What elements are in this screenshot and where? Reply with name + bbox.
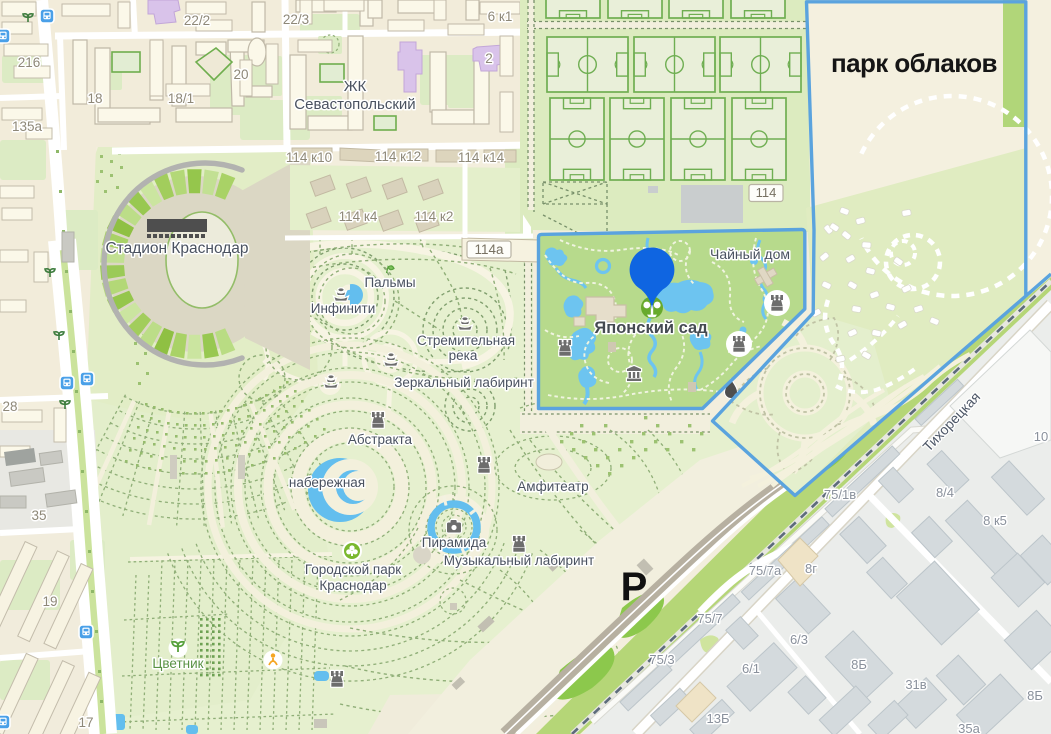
svg-text:6/1: 6/1 <box>742 661 760 676</box>
svg-text:22/3: 22/3 <box>283 12 309 27</box>
svg-text:Чайный дом: Чайный дом <box>710 246 790 262</box>
svg-text:28: 28 <box>2 399 17 414</box>
svg-text:6/3: 6/3 <box>790 632 808 647</box>
svg-text:набережная: набережная <box>289 475 365 490</box>
svg-text:13Б: 13Б <box>707 711 730 726</box>
svg-text:Инфинити: Инфинити <box>311 301 376 316</box>
svg-text:Цветник: Цветник <box>152 656 203 671</box>
svg-text:75/1в: 75/1в <box>824 487 856 502</box>
svg-text:20: 20 <box>233 67 248 82</box>
svg-text:31в: 31в <box>905 677 926 692</box>
svg-text:10: 10 <box>1034 429 1048 444</box>
svg-text:114 к10: 114 к10 <box>286 150 332 165</box>
svg-text:35а: 35а <box>958 721 980 734</box>
svg-text:114 к2: 114 к2 <box>415 209 454 224</box>
svg-text:8/4: 8/4 <box>936 485 954 500</box>
svg-text:114а: 114а <box>474 242 504 257</box>
svg-text:8Б: 8Б <box>1027 688 1043 703</box>
svg-text:114 к12: 114 к12 <box>375 149 421 164</box>
svg-text:8Б: 8Б <box>851 657 867 672</box>
svg-text:Японский сад: Японский сад <box>594 319 708 337</box>
svg-text:114 к4: 114 к4 <box>339 209 378 224</box>
svg-text:22/2: 22/2 <box>184 13 210 28</box>
svg-text:Пирамида: Пирамида <box>422 535 487 550</box>
svg-text:135а: 135а <box>12 119 43 134</box>
svg-text:Городской парк: Городской парк <box>305 562 401 577</box>
svg-text:Краснодар: Краснодар <box>319 578 386 593</box>
svg-text:Севастопольский: Севастопольский <box>294 96 415 113</box>
svg-text:река: река <box>449 348 478 363</box>
svg-text:75/7: 75/7 <box>697 611 722 626</box>
svg-text:114 к14: 114 к14 <box>458 150 505 165</box>
svg-text:75/3: 75/3 <box>649 652 674 667</box>
svg-text:114: 114 <box>756 185 777 200</box>
svg-text:2: 2 <box>485 51 493 66</box>
svg-text:17: 17 <box>78 715 93 730</box>
svg-text:парк облаков: парк облаков <box>831 48 997 78</box>
svg-text:8г: 8г <box>805 561 817 576</box>
svg-text:Музыкальный лабиринт: Музыкальный лабиринт <box>444 553 594 568</box>
svg-text:Амфитеатр: Амфитеатр <box>517 479 588 494</box>
svg-text:18: 18 <box>87 91 102 106</box>
svg-text:35: 35 <box>31 508 46 523</box>
svg-text:Р: Р <box>621 565 648 609</box>
svg-text:Стремительная: Стремительная <box>417 333 515 348</box>
svg-text:ЖК: ЖК <box>344 78 367 95</box>
svg-text:Стадион Краснодар: Стадион Краснодар <box>105 240 248 257</box>
svg-text:75/7а: 75/7а <box>749 563 782 578</box>
svg-text:216: 216 <box>18 55 41 70</box>
svg-text:19: 19 <box>42 594 57 609</box>
svg-text:18/1: 18/1 <box>168 91 194 106</box>
svg-text:Зеркальный лабиринт: Зеркальный лабиринт <box>394 375 534 390</box>
svg-text:Абстракта: Абстракта <box>348 432 413 447</box>
svg-text:8 к5: 8 к5 <box>983 513 1007 528</box>
svg-text:6 к1: 6 к1 <box>488 9 513 24</box>
svg-text:Пальмы: Пальмы <box>364 275 415 290</box>
